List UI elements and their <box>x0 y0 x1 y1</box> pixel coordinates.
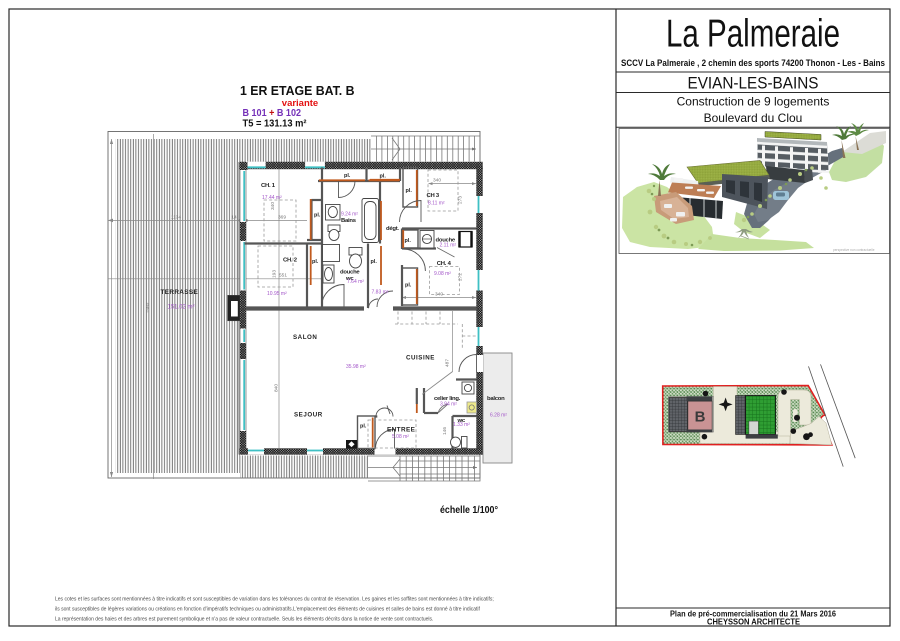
svg-text:1.33 m²: 1.33 m² <box>453 422 470 428</box>
svg-text:CHEYSSON ARCHITECTE: CHEYSSON ARCHITECTE <box>707 618 801 627</box>
svg-text:9.08 m²: 9.08 m² <box>434 271 451 277</box>
svg-text:1134: 1134 <box>171 215 182 221</box>
svg-text:balcon: balcon <box>487 396 505 402</box>
svg-text:CUISINE: CUISINE <box>406 354 435 361</box>
svg-text:146: 146 <box>442 427 448 435</box>
svg-text:CH 3: CH 3 <box>427 193 440 199</box>
svg-text:pl.: pl. <box>405 283 412 289</box>
svg-text:6.28 m²: 6.28 m² <box>490 412 507 418</box>
svg-text:SCCV La Palmeraie , 2 chemin d: SCCV La Palmeraie , 2 chemin des sports … <box>621 58 885 68</box>
svg-text:Boulevard du Clou: Boulevard du Clou <box>704 111 803 125</box>
svg-text:pl.: pl. <box>360 424 367 430</box>
svg-text:9.24 m²: 9.24 m² <box>341 212 358 218</box>
svg-text:perspective non contractuelle: perspective non contractuelle <box>833 248 875 252</box>
svg-text:TERRASSE: TERRASSE <box>161 289 199 296</box>
svg-text:B: B <box>695 409 706 426</box>
svg-text:487: 487 <box>445 359 451 367</box>
svg-text:pl.: pl. <box>405 238 412 244</box>
svg-text:5.08 m²: 5.08 m² <box>392 434 409 440</box>
svg-text:CH. 4: CH. 4 <box>437 261 452 267</box>
svg-text:SALON: SALON <box>293 334 317 341</box>
svg-text:ils sont susceptibles de légèr: ils sont susceptibles de légères variati… <box>55 607 481 613</box>
svg-text:10.95 m²: 10.95 m² <box>267 291 287 297</box>
svg-text:3.94 m²: 3.94 m² <box>440 402 457 408</box>
svg-text:7.83 m²: 7.83 m² <box>372 290 389 296</box>
svg-text:CH. 2: CH. 2 <box>283 258 298 264</box>
svg-text:193: 193 <box>272 270 278 278</box>
svg-text:272: 272 <box>458 273 464 281</box>
svg-text:La représentation des haies et: La représentation des haies et des arbre… <box>55 617 433 623</box>
svg-text:151.02 m²: 151.02 m² <box>168 304 195 310</box>
svg-text:pl.: pl. <box>344 173 351 179</box>
svg-text:échelle 1/100°: échelle 1/100° <box>440 504 498 516</box>
svg-text:8.11 m²: 8.11 m² <box>428 201 445 207</box>
svg-text:pl.: pl. <box>371 259 378 265</box>
svg-text:14: 14 <box>231 215 237 221</box>
svg-text:douche: douche <box>340 270 360 276</box>
svg-text:340: 340 <box>433 178 441 184</box>
svg-text:17.44 m²: 17.44 m² <box>262 195 282 201</box>
svg-text:Les cotes et les surfaces sont: Les cotes et les surfaces sont mentionné… <box>55 597 494 603</box>
svg-text:EVIAN-LES-BAINS: EVIAN-LES-BAINS <box>688 75 819 93</box>
svg-text:pl.: pl. <box>314 213 321 219</box>
svg-text:840: 840 <box>274 384 280 392</box>
svg-text:pl.: pl. <box>406 188 413 194</box>
svg-text:1560: 1560 <box>145 302 151 313</box>
svg-text:dégt.: dégt. <box>386 226 399 232</box>
svg-text:T5 = 131.13 m²: T5 = 131.13 m² <box>243 118 307 130</box>
svg-text:340: 340 <box>270 202 276 210</box>
svg-text:pl.: pl. <box>312 259 319 265</box>
svg-text:1 ER ETAGE BAT. B: 1 ER ETAGE BAT. B <box>240 83 355 98</box>
svg-text:35.98 m²: 35.98 m² <box>346 364 366 370</box>
svg-text:551: 551 <box>279 273 287 279</box>
svg-text:SEJOUR: SEJOUR <box>294 412 323 419</box>
svg-text:369: 369 <box>278 215 286 221</box>
svg-text:pl.: pl. <box>380 173 387 179</box>
svg-text:ENTREE: ENTREE <box>387 426 416 433</box>
svg-text:Bains: Bains <box>341 218 357 224</box>
svg-text:Construction de 9 logements: Construction de 9 logements <box>677 95 830 109</box>
svg-text:7.64 m²: 7.64 m² <box>347 279 364 285</box>
svg-text:CH. 1: CH. 1 <box>261 183 276 189</box>
svg-text:La Palmeraie: La Palmeraie <box>666 13 840 56</box>
svg-text:2.11 m²: 2.11 m² <box>440 243 457 249</box>
